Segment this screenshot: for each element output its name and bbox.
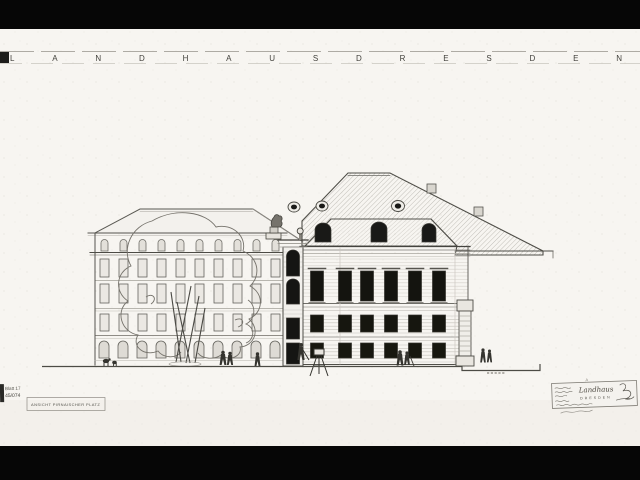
view-label-text: ANSICHT PIRNAISCHER PLATZ — [31, 402, 100, 407]
elevation-drawing: LANDHAUSDRESDEN — [0, 0, 640, 480]
stamp-line2: 45/074 — [5, 393, 21, 399]
drawing-sheet: LANDHAUSDRESDEN — [0, 0, 640, 480]
title-block-script: Landhaus — [578, 385, 614, 394]
chimney — [427, 184, 436, 193]
chimney — [474, 207, 483, 216]
title-left-block — [0, 52, 9, 63]
letterbox-top — [0, 0, 640, 29]
title-block-frame — [552, 381, 638, 409]
stamp-line1: Blatt 17 — [5, 386, 21, 391]
right-pilaster — [456, 300, 474, 366]
paper-shading — [0, 400, 640, 447]
letterbox-bottom — [0, 446, 640, 480]
